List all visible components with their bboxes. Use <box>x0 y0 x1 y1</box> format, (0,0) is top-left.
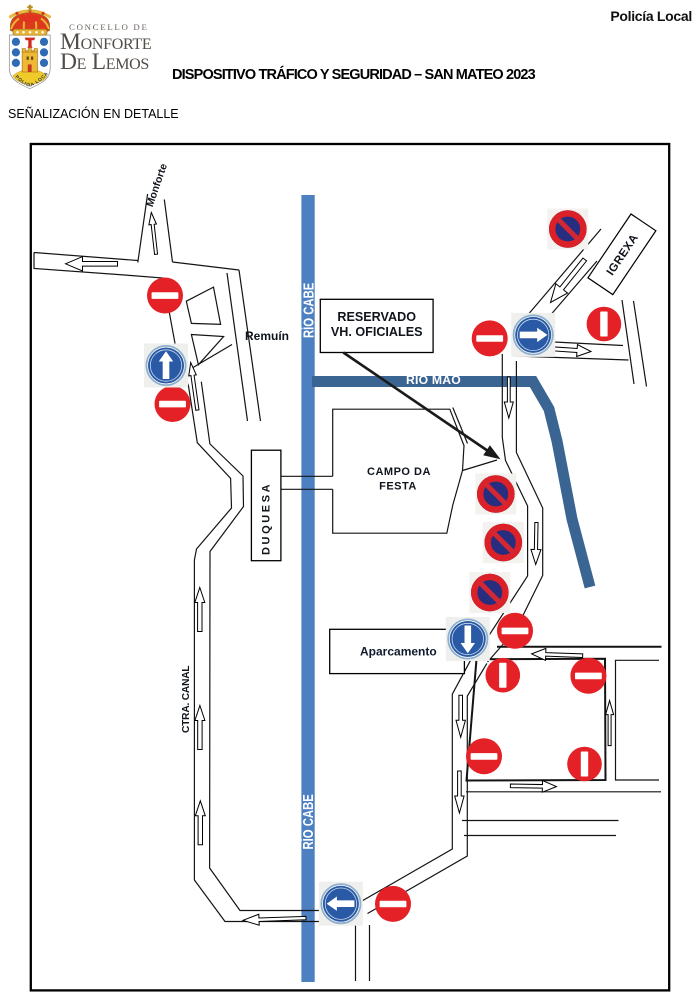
svg-text:Remuín: Remuín <box>245 329 289 343</box>
svg-text:DUQUESA: DUQUESA <box>261 482 273 555</box>
svg-text:RÍO CABE: RÍO CABE <box>300 282 317 338</box>
svg-text:RÍO MAO: RÍO MAO <box>406 372 461 387</box>
svg-text:CTRA. CANAL: CTRA. CANAL <box>181 666 192 733</box>
svg-text:FESTA: FESTA <box>379 481 417 493</box>
svg-text:Aparcamento: Aparcamento <box>360 645 437 659</box>
svg-text:VH. OFICIALES: VH. OFICIALES <box>331 325 423 339</box>
svg-text:RESERVADO: RESERVADO <box>337 310 416 324</box>
svg-text:RÍO CABE: RÍO CABE <box>300 794 317 850</box>
svg-text:CAMPO DA: CAMPO DA <box>367 466 431 478</box>
